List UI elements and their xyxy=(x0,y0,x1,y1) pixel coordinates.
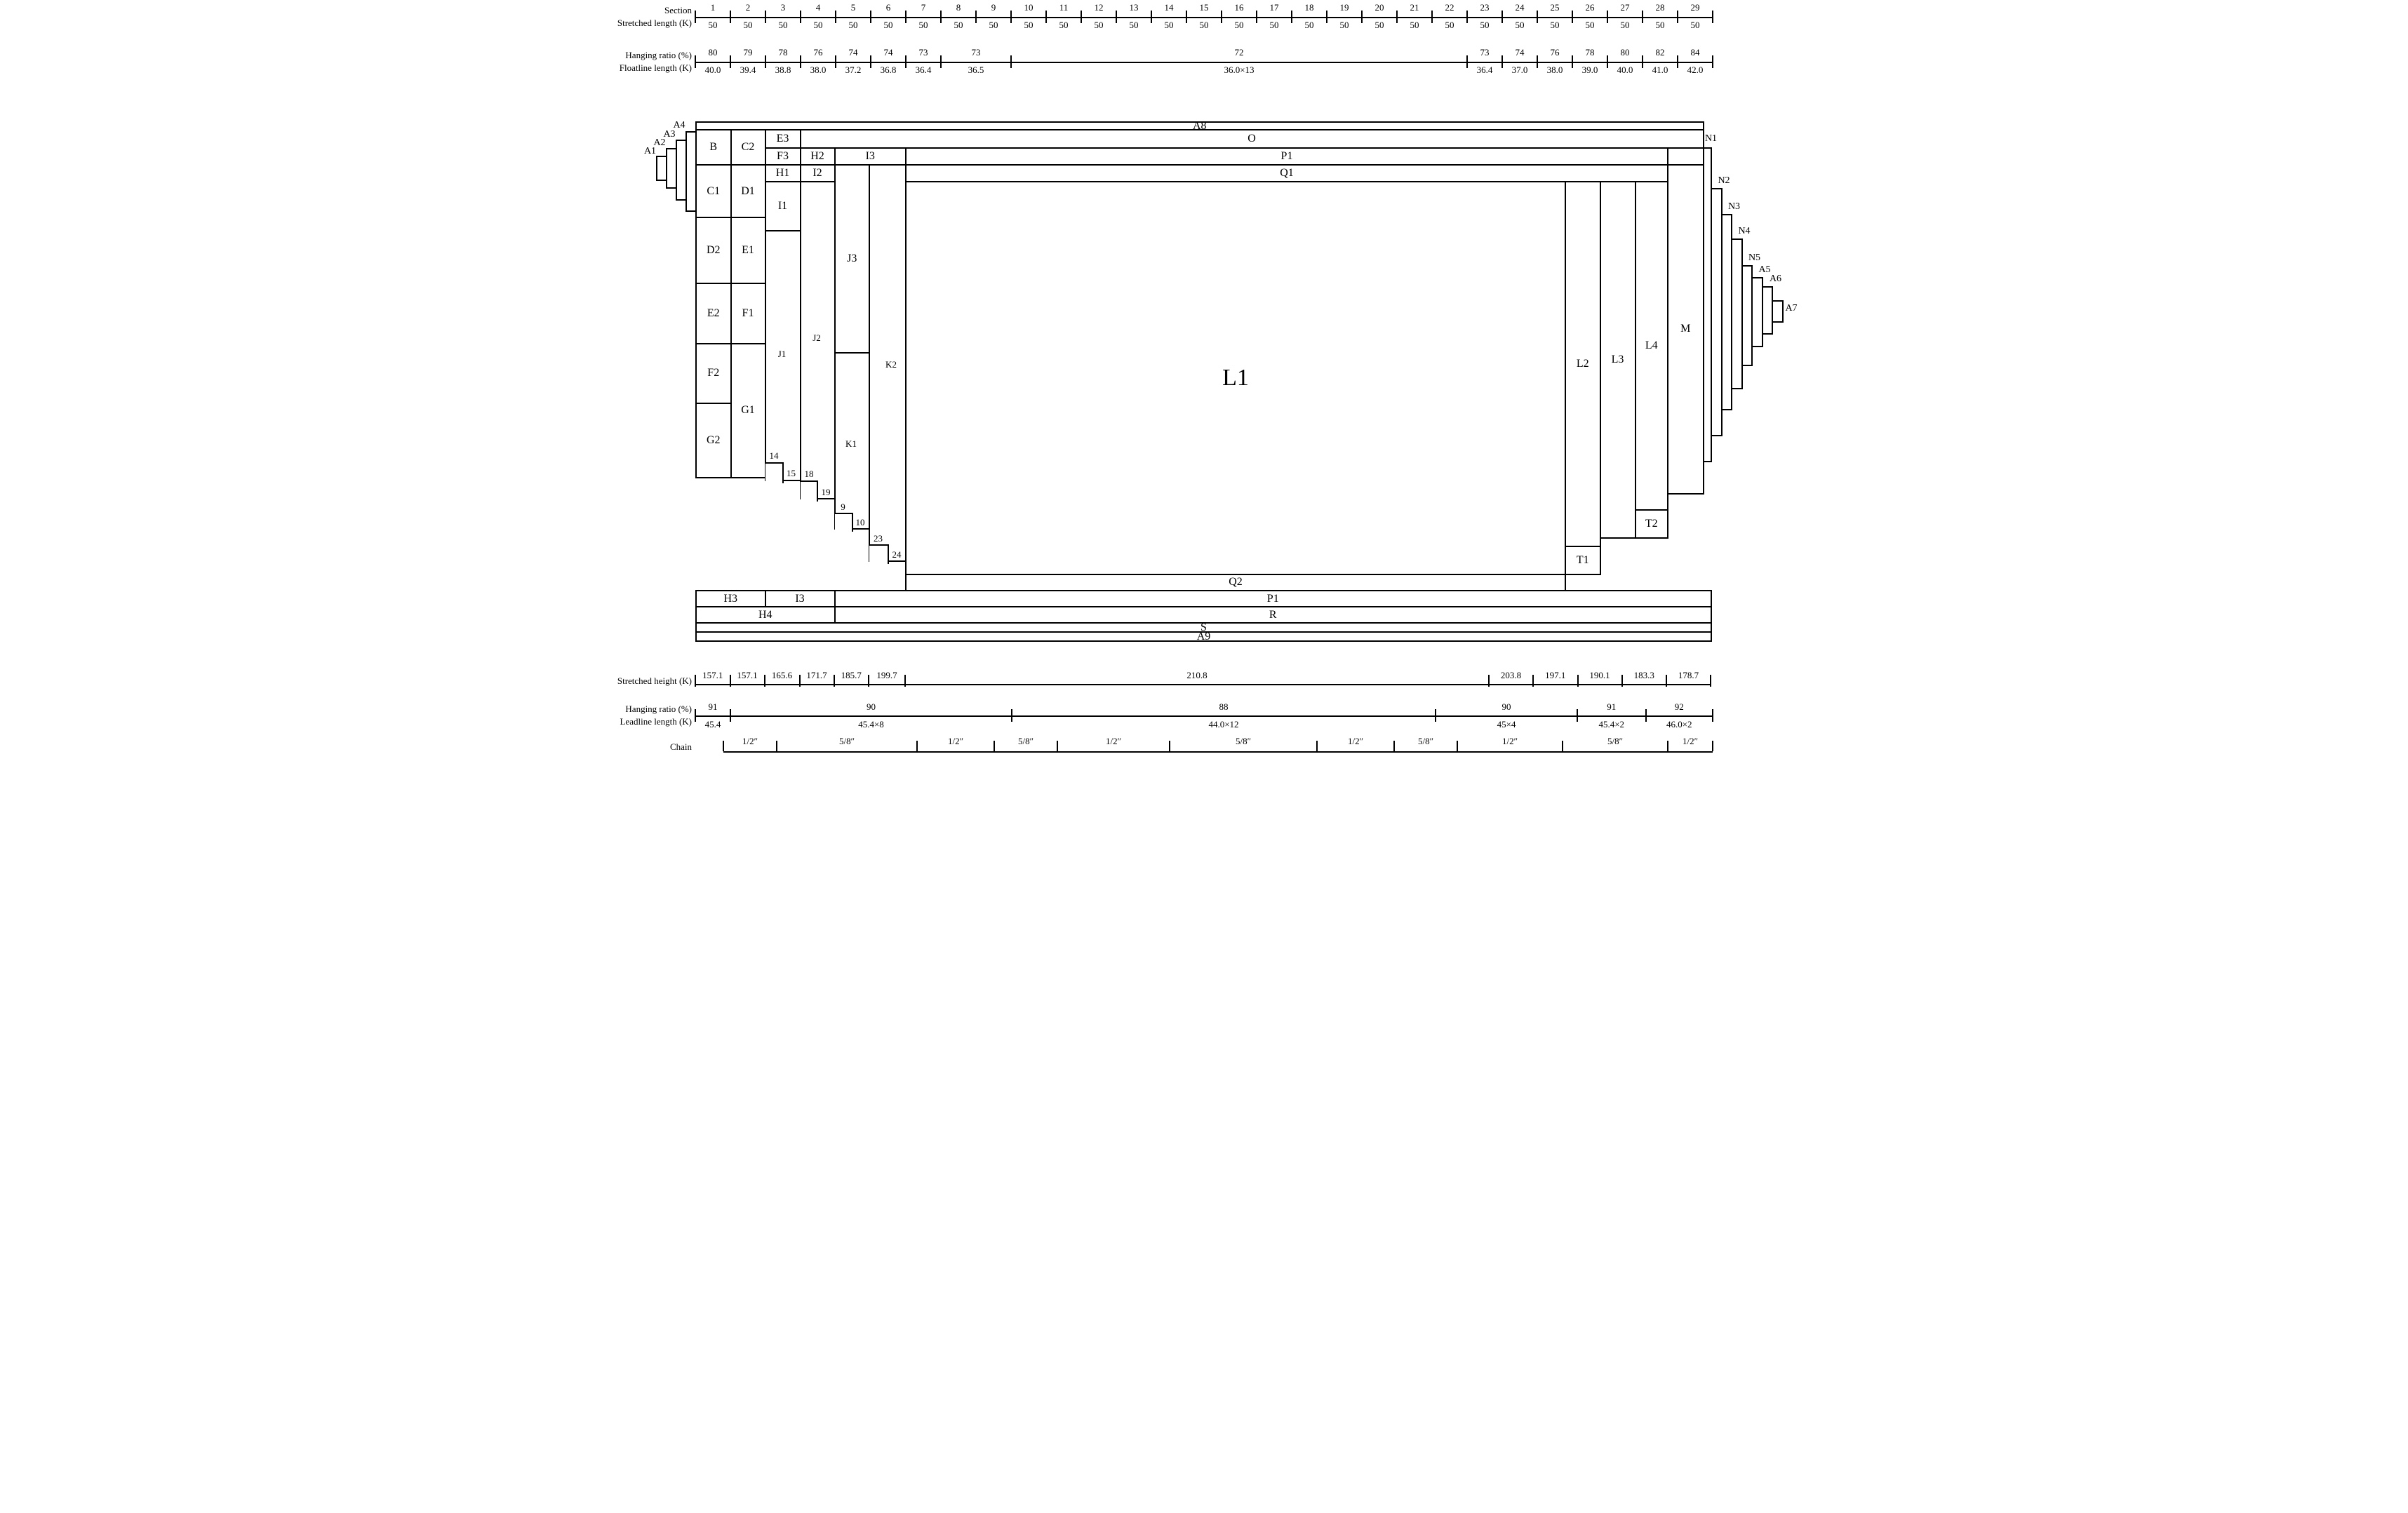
step-label-14: 14 xyxy=(770,450,779,462)
ruler-stretched-height-tick xyxy=(1666,675,1667,687)
ruler-chain-line xyxy=(723,751,1713,753)
ruler-chain-value-top: 5/8″ xyxy=(839,736,855,747)
panel-I3-top: I3 xyxy=(834,147,907,166)
panel-J3-label: J3 xyxy=(847,253,857,265)
ruler-top-hanging-value-bottom: 42.0 xyxy=(1687,65,1704,76)
ruler-section-tick xyxy=(695,11,696,23)
ruler-chain-tick xyxy=(1393,741,1395,751)
ruler-chain-tick xyxy=(1316,741,1318,751)
ruler-top-hanging-value-top: 73 xyxy=(919,47,928,58)
ruler-chain-tick xyxy=(1712,741,1713,751)
ruler-section-value-bottom: 50 xyxy=(1621,20,1630,31)
panel-M: M xyxy=(1667,164,1704,495)
ruler-top-hanging-value-bottom: 37.0 xyxy=(1512,65,1528,76)
ruler-top-hanging-row-label: Hanging ratio (%) xyxy=(604,50,692,61)
panel-L1-label: L1 xyxy=(1222,365,1249,391)
ruler-bottom-hanging-value-top: 90 xyxy=(1502,701,1511,713)
ruler-section-tick xyxy=(1045,11,1047,23)
panel-P1-bottom: P1 xyxy=(834,590,1713,607)
panel-M-label: M xyxy=(1680,323,1690,335)
ruler-section-value-top: 24 xyxy=(1516,2,1525,13)
ruler-section-value-bottom: 50 xyxy=(1340,20,1349,31)
step-label-23: 23 xyxy=(874,533,883,544)
panel-A2-bar xyxy=(666,148,677,189)
panel-P1-bottom-label: P1 xyxy=(1267,593,1279,605)
panel-G1: G1 xyxy=(730,343,766,478)
panel-N3-label: N3 xyxy=(1728,201,1740,213)
panel-F2-label: F2 xyxy=(707,367,719,379)
ruler-top-hanging-value-top: 78 xyxy=(1586,47,1595,58)
ruler-top-hanging-value-bottom: 38.0 xyxy=(1547,65,1563,76)
ruler-top-hanging-tick xyxy=(835,55,836,68)
ruler-section-value-top: 26 xyxy=(1586,2,1595,13)
ruler-top-hanging-value-top: 80 xyxy=(1621,47,1630,58)
ruler-section-tick xyxy=(1572,11,1573,23)
ruler-bottom-hanging-value-top: 90 xyxy=(867,701,876,713)
ruler-top-hanging-value-bottom: 40.0 xyxy=(1617,65,1633,76)
purse-seine-net-plan: 1502503504505506507508509501050115012501… xyxy=(601,0,1807,758)
ruler-top-hanging-value-bottom: 36.4 xyxy=(1477,65,1493,76)
ruler-section-value-top: 14 xyxy=(1165,2,1174,13)
ruler-bottom-hanging-line xyxy=(695,715,1713,717)
ruler-section-tick xyxy=(1431,11,1433,23)
ruler-top-hanging-value-top: 74 xyxy=(1516,47,1525,58)
ruler-section-tick xyxy=(800,11,801,23)
ruler-top-hanging-value-bottom: 38.0 xyxy=(810,65,827,76)
ruler-section-value-top: 29 xyxy=(1691,2,1700,13)
ruler-chain-tick xyxy=(723,741,724,751)
ruler-bottom-hanging-value-bottom: 44.0×12 xyxy=(1208,719,1238,730)
panel-I3-bottom: I3 xyxy=(765,590,836,607)
panel-D1: D1 xyxy=(730,164,766,218)
panel-F1-label: F1 xyxy=(742,307,754,320)
step-notch-K1 xyxy=(835,513,853,532)
ruler-bottom-hanging-value-top: 92 xyxy=(1675,701,1684,713)
panel-A7-label: A7 xyxy=(1785,303,1797,314)
panel-L4: L4 xyxy=(1635,181,1669,511)
panel-A1-label: A1 xyxy=(644,146,656,157)
ruler-stretched-height-value-top: 165.6 xyxy=(772,670,792,681)
ruler-stretched-height-tick xyxy=(1532,675,1534,687)
step-notch-K2 xyxy=(869,544,889,564)
ruler-bottom-hanging-value-top: 88 xyxy=(1219,701,1229,713)
ruler-section-value-bottom: 50 xyxy=(1305,20,1314,31)
ruler-top-hanging-value-bottom: 37.2 xyxy=(845,65,862,76)
panel-F2: F2 xyxy=(695,343,732,405)
ruler-chain-tick xyxy=(994,741,995,751)
ruler-stretched-height-value-top: 210.8 xyxy=(1186,670,1207,681)
panel-N1-label: N1 xyxy=(1705,133,1717,144)
ruler-section-value-bottom: 50 xyxy=(1656,20,1665,31)
ruler-section-tick xyxy=(1712,11,1713,23)
ruler-top-hanging-tick xyxy=(1501,55,1503,68)
ruler-section-value-bottom: 50 xyxy=(1375,20,1384,31)
ruler-section-line xyxy=(695,17,1713,18)
ruler-section-tick xyxy=(1010,11,1012,23)
ruler-top-hanging-value-bottom: 38.8 xyxy=(775,65,791,76)
ruler-section-value-top: 27 xyxy=(1621,2,1630,13)
ruler-section-row-label: Stretched length (K) xyxy=(604,18,692,29)
ruler-stretched-height-tick xyxy=(764,675,765,687)
ruler-chain-value-top: 1/2″ xyxy=(948,736,963,747)
ruler-bottom-hanging-tick xyxy=(1435,709,1436,722)
ruler-section-value-bottom: 50 xyxy=(1586,20,1595,31)
ruler-section-value-top: 21 xyxy=(1410,2,1419,13)
panel-B-label: B xyxy=(709,141,717,154)
ruler-top-hanging-value-top: 76 xyxy=(1551,47,1560,58)
panel-H1-label: H1 xyxy=(776,167,790,180)
panel-A7-bar xyxy=(1772,300,1784,323)
ruler-chain-value-top: 1/2″ xyxy=(1683,736,1698,747)
panel-E2: E2 xyxy=(695,283,732,344)
ruler-section-value-bottom: 50 xyxy=(1059,20,1069,31)
panel-T2-label: T2 xyxy=(1645,518,1658,530)
panel-G1-label: G1 xyxy=(741,404,755,417)
panel-E2-label: E2 xyxy=(707,307,720,320)
ruler-chain-value-top: 1/2″ xyxy=(1348,736,1363,747)
ruler-top-hanging-value-top: 72 xyxy=(1235,47,1244,58)
ruler-section-value-bottom: 50 xyxy=(1691,20,1700,31)
ruler-stretched-height-value-top: 178.7 xyxy=(1678,670,1699,681)
ruler-section-value-top: 3 xyxy=(781,2,786,13)
ruler-top-hanging-tick xyxy=(1572,55,1573,68)
ruler-chain-value-top: 5/8″ xyxy=(1018,736,1034,747)
ruler-bottom-hanging-tick xyxy=(695,709,696,722)
ruler-chain-row-label: Chain xyxy=(604,741,692,753)
ruler-section-tick xyxy=(1291,11,1292,23)
ruler-stretched-height-tick xyxy=(730,675,731,687)
panel-D2: D2 xyxy=(695,217,732,284)
panel-J1-label: J1 xyxy=(778,349,787,360)
ruler-section-tick xyxy=(730,11,731,23)
panel-T1: T1 xyxy=(1565,546,1601,575)
ruler-bottom-hanging-tick xyxy=(1577,709,1578,722)
ruler-top-hanging-value-bottom: 36.0×13 xyxy=(1224,65,1254,76)
panel-H3-label: H3 xyxy=(723,593,737,605)
ruler-chain-value-top: 1/2″ xyxy=(1106,736,1121,747)
ruler-section-value-bottom: 50 xyxy=(1445,20,1454,31)
ruler-bottom-hanging-tick xyxy=(1645,709,1647,722)
panel-C1-label: C1 xyxy=(707,185,720,198)
ruler-top-hanging-value-top: 82 xyxy=(1656,47,1665,58)
ruler-chain-tick xyxy=(1457,741,1458,751)
ruler-section-row-label: Section xyxy=(604,5,692,16)
panel-L4-label: L4 xyxy=(1645,339,1658,352)
ruler-section-value-bottom: 50 xyxy=(919,20,928,31)
ruler-bottom-hanging-tick xyxy=(1011,709,1012,722)
ruler-stretched-height-tick xyxy=(1621,675,1623,687)
ruler-section-value-bottom: 50 xyxy=(744,20,753,31)
step-notch-J1 xyxy=(765,462,784,483)
ruler-stretched-height-value-top: 171.7 xyxy=(806,670,827,681)
ruler-section-value-bottom: 50 xyxy=(1095,20,1104,31)
ruler-bottom-hanging-value-top: 91 xyxy=(709,701,718,713)
ruler-section-tick xyxy=(1677,11,1678,23)
ruler-section-value-bottom: 50 xyxy=(709,20,718,31)
panel-R-label: R xyxy=(1269,609,1277,621)
ruler-section-tick xyxy=(1221,11,1222,23)
ruler-chain-tick xyxy=(1057,741,1058,751)
ruler-chain-tick xyxy=(1169,741,1170,751)
panel-H4-label: H4 xyxy=(758,609,772,621)
panel-A6-label: A6 xyxy=(1770,274,1781,285)
panel-H1: H1 xyxy=(765,164,801,182)
step-label-15: 15 xyxy=(787,468,796,479)
ruler-section-tick xyxy=(835,11,836,23)
ruler-stretched-height-tick xyxy=(904,675,906,687)
ruler-section-tick xyxy=(1361,11,1363,23)
panel-I2: I2 xyxy=(800,164,836,182)
ruler-stretched-height-value-top: 157.1 xyxy=(702,670,723,681)
panel-E3: E3 xyxy=(765,129,801,149)
ruler-chain-value-top: 1/2″ xyxy=(1502,736,1518,747)
ruler-section-value-bottom: 50 xyxy=(989,20,998,31)
ruler-section-tick xyxy=(870,11,871,23)
panel-Q2-label: Q2 xyxy=(1229,576,1243,589)
ruler-stretched-height-value-top: 199.7 xyxy=(876,670,897,681)
ruler-section-value-bottom: 50 xyxy=(1024,20,1034,31)
ruler-section-value-bottom: 50 xyxy=(1551,20,1560,31)
ruler-chain-value-top: 1/2″ xyxy=(742,736,758,747)
ruler-section-value-bottom: 50 xyxy=(1270,20,1279,31)
panel-L2-label: L2 xyxy=(1577,358,1589,370)
ruler-section-tick xyxy=(1607,11,1608,23)
ruler-chain-tick xyxy=(1667,741,1668,751)
ruler-section-tick xyxy=(1501,11,1503,23)
ruler-top-hanging-value-top: 73 xyxy=(1480,47,1490,58)
ruler-bottom-hanging-value-bottom: 45.4×2 xyxy=(1598,719,1624,730)
ruler-top-hanging-tick xyxy=(695,55,696,68)
ruler-section-value-bottom: 50 xyxy=(1130,20,1139,31)
ruler-section-value-top: 28 xyxy=(1656,2,1665,13)
panel-H4: H4 xyxy=(695,606,836,624)
panel-O: O xyxy=(800,129,1704,149)
ruler-bottom-hanging-value-bottom: 45.4 xyxy=(705,719,721,730)
panel-A3-bar xyxy=(676,140,687,201)
panel-L1: L1 xyxy=(905,181,1566,575)
panel-N4-label: N4 xyxy=(1738,226,1750,237)
ruler-top-hanging-tick xyxy=(940,55,942,68)
ruler-section-value-top: 18 xyxy=(1305,2,1314,13)
panel-D1-label: D1 xyxy=(741,185,755,198)
ruler-section-value-top: 11 xyxy=(1059,2,1069,13)
ruler-top-hanging-value-bottom: 36.5 xyxy=(968,65,984,76)
ruler-chain-value-top: 5/8″ xyxy=(1236,736,1251,747)
ruler-section-value-bottom: 50 xyxy=(884,20,893,31)
ruler-top-hanging-tick xyxy=(1607,55,1608,68)
panel-E1: E1 xyxy=(730,217,766,284)
ruler-bottom-hanging-value-top: 91 xyxy=(1607,701,1616,713)
ruler-section-value-bottom: 50 xyxy=(849,20,858,31)
ruler-section-tick xyxy=(1081,11,1082,23)
panel-G2: G2 xyxy=(695,403,732,478)
ruler-top-hanging-value-top: 79 xyxy=(744,47,753,58)
ruler-bottom-hanging-value-bottom: 46.0×2 xyxy=(1666,719,1692,730)
ruler-stretched-height-row-label: Stretched height (K) xyxy=(604,675,692,687)
ruler-section-tick xyxy=(940,11,942,23)
ruler-section-value-bottom: 50 xyxy=(1516,20,1525,31)
ruler-top-hanging-tick xyxy=(1010,55,1012,68)
panel-A9-label: A9 xyxy=(1197,631,1211,643)
panel-A1-bar xyxy=(656,156,667,181)
step-label-24: 24 xyxy=(892,549,902,560)
ruler-stretched-height-tick xyxy=(1577,675,1579,687)
panel-H2: H2 xyxy=(800,147,836,166)
ruler-top-hanging-value-bottom: 36.4 xyxy=(916,65,932,76)
ruler-section-value-top: 25 xyxy=(1551,2,1560,13)
ruler-bottom-hanging-value-bottom: 45×4 xyxy=(1497,719,1516,730)
panel-H3: H3 xyxy=(695,590,766,607)
panel-B: B xyxy=(695,129,732,166)
panel-C2: C2 xyxy=(730,129,766,166)
panel-I2-label: I2 xyxy=(812,167,822,180)
ruler-section-tick xyxy=(1326,11,1327,23)
ruler-stretched-height-value-top: 183.3 xyxy=(1634,670,1654,681)
ruler-section-tick xyxy=(1396,11,1398,23)
ruler-section-value-bottom: 50 xyxy=(954,20,963,31)
ruler-section-value-top: 17 xyxy=(1270,2,1279,13)
ruler-stretched-height-tick xyxy=(1488,675,1490,687)
ruler-section-value-top: 9 xyxy=(991,2,996,13)
panel-K1-label: K1 xyxy=(845,438,857,450)
ruler-section-tick xyxy=(765,11,766,23)
step-label-19: 19 xyxy=(822,487,831,498)
ruler-stretched-height-value-top: 190.1 xyxy=(1589,670,1610,681)
ruler-section-value-top: 13 xyxy=(1130,2,1139,13)
ruler-top-hanging-tick xyxy=(870,55,871,68)
ruler-section-value-top: 1 xyxy=(711,2,716,13)
ruler-top-hanging-value-bottom: 39.0 xyxy=(1582,65,1598,76)
panel-D2-label: D2 xyxy=(707,244,721,257)
ruler-section-value-top: 8 xyxy=(956,2,961,13)
ruler-section-value-top: 12 xyxy=(1095,2,1104,13)
ruler-section-value-bottom: 50 xyxy=(1480,20,1490,31)
ruler-top-hanging-row-label: Floatline length (K) xyxy=(604,62,692,74)
ruler-section-value-top: 22 xyxy=(1445,2,1454,13)
ruler-bottom-hanging-row-label: Hanging ratio (%) xyxy=(604,704,692,715)
panel-C1: C1 xyxy=(695,164,732,218)
ruler-section-value-bottom: 50 xyxy=(1200,20,1209,31)
ruler-section-value-top: 2 xyxy=(746,2,751,13)
ruler-chain-tick xyxy=(916,741,918,751)
ruler-section-value-bottom: 50 xyxy=(1165,20,1174,31)
ruler-top-hanging-value-bottom: 41.0 xyxy=(1652,65,1668,76)
ruler-top-hanging-tick xyxy=(765,55,766,68)
ruler-stretched-height-value-top: 185.7 xyxy=(841,670,862,681)
ruler-stretched-height-value-top: 157.1 xyxy=(737,670,757,681)
panel-R: R xyxy=(834,606,1713,624)
panel-C2-label: C2 xyxy=(742,141,755,154)
ruler-section-tick xyxy=(1116,11,1117,23)
ruler-top-hanging-tick xyxy=(1537,55,1538,68)
ruler-stretched-height-value-top: 203.8 xyxy=(1501,670,1521,681)
ruler-top-hanging-value-top: 78 xyxy=(779,47,788,58)
ruler-top-hanging-value-top: 80 xyxy=(709,47,718,58)
ruler-bottom-hanging-tick xyxy=(730,709,731,722)
ruler-chain-tick xyxy=(1562,741,1563,751)
panel-L3: L3 xyxy=(1600,181,1636,539)
ruler-top-hanging-value-bottom: 39.4 xyxy=(740,65,756,76)
panel-I1: I1 xyxy=(765,181,801,231)
panel-J3: J3 xyxy=(834,164,871,354)
panel-O-label: O xyxy=(1248,133,1256,145)
panel-F3: F3 xyxy=(765,147,801,166)
ruler-top-hanging-value-top: 84 xyxy=(1691,47,1700,58)
panel-P1-top-label: P1 xyxy=(1281,150,1293,163)
ruler-section-tick xyxy=(975,11,977,23)
step-label-10: 10 xyxy=(856,517,865,528)
ruler-top-hanging-tick xyxy=(1712,55,1713,68)
panel-N5-label: N5 xyxy=(1748,253,1760,264)
ruler-section-value-top: 20 xyxy=(1375,2,1384,13)
panel-I1-label: I1 xyxy=(778,200,787,213)
panel-E1-label: E1 xyxy=(742,244,754,257)
ruler-top-hanging-value-top: 74 xyxy=(849,47,858,58)
ruler-top-hanging-tick xyxy=(905,55,907,68)
ruler-section-value-bottom: 50 xyxy=(1235,20,1244,31)
ruler-section-value-bottom: 50 xyxy=(779,20,788,31)
panel-H2-label: H2 xyxy=(810,150,824,163)
panel-G2-label: G2 xyxy=(707,434,721,447)
panel-F1: F1 xyxy=(730,283,766,344)
panel-T1-label: T1 xyxy=(1577,554,1589,567)
ruler-section-tick xyxy=(1151,11,1152,23)
ruler-top-hanging-tick xyxy=(1642,55,1643,68)
ruler-section-value-top: 10 xyxy=(1024,2,1034,13)
panel-L2: L2 xyxy=(1565,181,1601,547)
ruler-bottom-hanging-tick xyxy=(1712,709,1713,722)
ruler-top-hanging-value-bottom: 40.0 xyxy=(705,65,721,76)
step-label-18: 18 xyxy=(805,469,814,480)
ruler-stretched-height-tick xyxy=(868,675,869,687)
step-notch-J2 xyxy=(801,480,818,502)
ruler-chain-tick xyxy=(776,741,777,751)
ruler-stretched-height-tick xyxy=(1710,675,1711,687)
ruler-section-tick xyxy=(1537,11,1538,23)
ruler-top-hanging-tick xyxy=(730,55,731,68)
ruler-section-tick xyxy=(1186,11,1187,23)
panel-I3-top-label: I3 xyxy=(866,150,875,163)
panel-Q2: Q2 xyxy=(905,574,1566,592)
ruler-stretched-height-value-top: 197.1 xyxy=(1545,670,1565,681)
panel-T2: T2 xyxy=(1635,509,1669,539)
ruler-top-hanging-tick xyxy=(800,55,801,68)
ruler-section-value-bottom: 50 xyxy=(1410,20,1419,31)
panel-J2-label: J2 xyxy=(812,332,821,344)
ruler-stretched-height-line xyxy=(695,684,1711,685)
panel-F3-label: F3 xyxy=(777,150,789,163)
ruler-stretched-height-tick xyxy=(695,675,696,687)
panel-E3-label: E3 xyxy=(777,133,789,145)
ruler-chain-value-top: 5/8″ xyxy=(1607,736,1623,747)
ruler-section-value-bottom: 50 xyxy=(814,20,823,31)
ruler-top-hanging-value-top: 73 xyxy=(972,47,981,58)
panel-Q1: Q1 xyxy=(905,164,1668,182)
ruler-top-hanging-value-top: 74 xyxy=(884,47,893,58)
ruler-section-value-top: 7 xyxy=(921,2,926,13)
ruler-top-hanging-value-bottom: 36.8 xyxy=(881,65,897,76)
ruler-section-tick xyxy=(1466,11,1468,23)
panel-N2-label: N2 xyxy=(1718,175,1730,187)
panel-L3-label: L3 xyxy=(1612,354,1624,366)
ruler-bottom-hanging-row-label: Leadline length (K) xyxy=(604,716,692,727)
ruler-bottom-hanging-value-bottom: 45.4×8 xyxy=(858,719,884,730)
ruler-section-tick xyxy=(905,11,907,23)
ruler-stretched-height-tick xyxy=(799,675,801,687)
ruler-top-hanging-tick xyxy=(1466,55,1468,68)
ruler-top-hanging-line xyxy=(695,62,1713,63)
ruler-section-value-top: 19 xyxy=(1340,2,1349,13)
